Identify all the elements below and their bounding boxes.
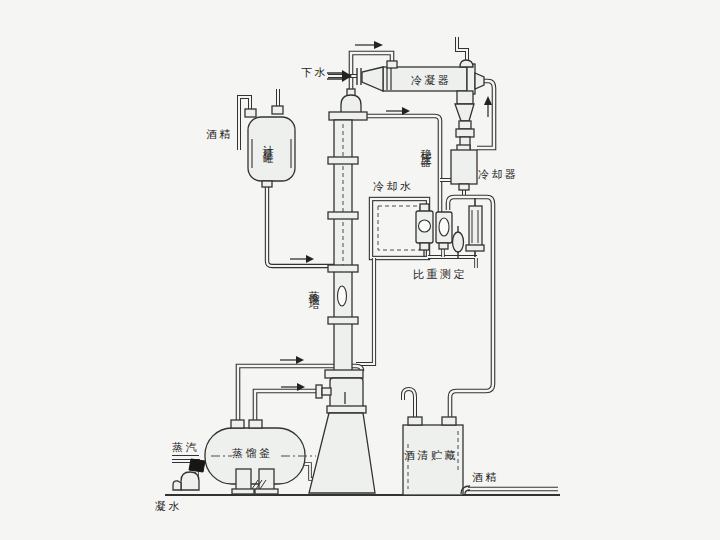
steam-trap-assembly (173, 459, 205, 490)
label-cooling-water: 冷却水 (373, 181, 414, 193)
label-alcohol-in: 酒精 (206, 129, 233, 141)
cooler-assembly (451, 91, 477, 190)
label-drain-water: 下水 (301, 67, 328, 79)
column-pedestal (309, 413, 375, 493)
sight-glass (338, 286, 347, 306)
label-measuring-tank: 计量罐 (261, 136, 273, 148)
label-condenser: 冷凝器 (411, 75, 452, 87)
cooler-body (451, 150, 477, 184)
specific-gravity-instruments (378, 198, 484, 258)
label-condensate-water: 凝水 (155, 501, 182, 513)
label-pressure-stabilizer: 稳压器 (419, 140, 431, 152)
diagram-linework (0, 0, 720, 540)
label-distillation-pot: 蒸馏釜 (232, 448, 273, 460)
steam-trap (181, 472, 199, 490)
steam-valve (189, 459, 205, 472)
float-gauge (453, 232, 464, 252)
label-distillation-column: 蒸馏塔 (307, 281, 319, 293)
label-alcohol-out: 酒精 (472, 472, 499, 484)
condenser-left-cone (362, 67, 383, 91)
column-side-nozzle (316, 385, 322, 398)
label-specific-gravity: 比重测定 (413, 269, 467, 281)
hydrometer-jar (469, 206, 482, 246)
column-base-vessel (330, 378, 363, 408)
process-flow-diagram: 下水 冷凝器 酒精 计量罐 稳压器 冷却水 冷却器 比重测定 蒸馏塔 蒸汽 蒸馏… (0, 0, 720, 540)
condenser-vent-dome (460, 60, 473, 67)
label-steam: 蒸汽 (172, 442, 199, 456)
condenser-right-cone (475, 73, 484, 89)
label-cooler: 冷却器 (478, 169, 519, 181)
condenser-vapor-nozzle (387, 61, 397, 68)
label-alcohol-storage: 酒清贮藏 (404, 450, 458, 462)
column-dome (341, 95, 361, 113)
measuring-tank-shell (248, 117, 295, 181)
pipes (172, 37, 558, 489)
